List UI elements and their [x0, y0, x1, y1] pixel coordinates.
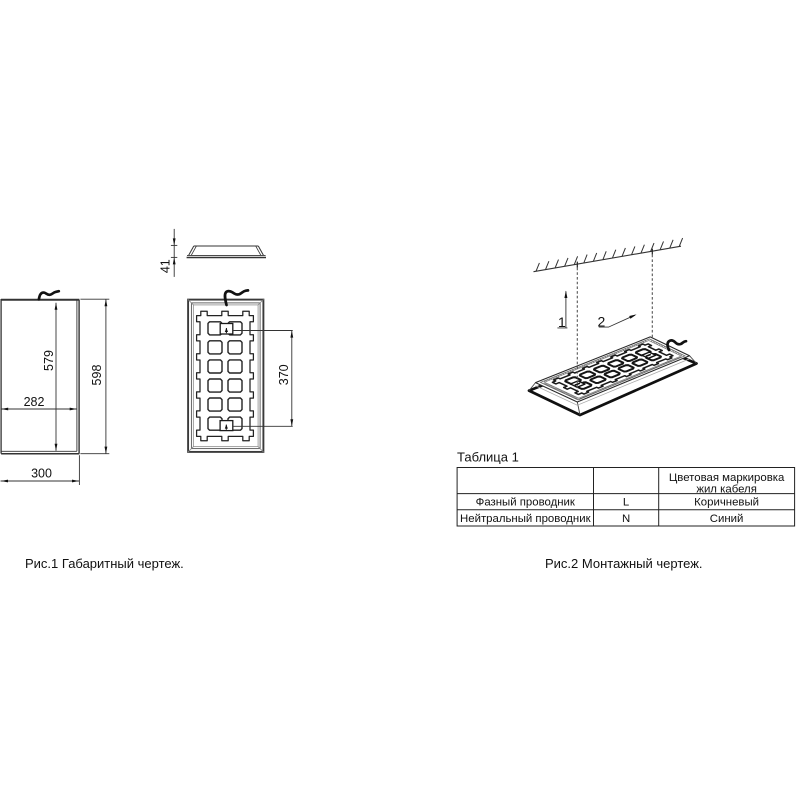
svg-text:Рис.1 Габаритный чертеж.: Рис.1 Габаритный чертеж. — [25, 556, 184, 571]
svg-text:Рис.2 Монтажный чертеж.: Рис.2 Монтажный чертеж. — [545, 556, 703, 571]
svg-text:Синий: Синий — [710, 513, 744, 525]
svg-text:370: 370 — [277, 364, 291, 385]
svg-text:L: L — [623, 497, 629, 509]
svg-text:жил кабеля: жил кабеля — [696, 484, 757, 496]
svg-text:Цветовая маркировка: Цветовая маркировка — [669, 472, 785, 484]
svg-text:282: 282 — [24, 395, 45, 409]
svg-text:598: 598 — [90, 365, 104, 386]
svg-text:Нейтральный проводник: Нейтральный проводник — [460, 513, 592, 525]
svg-text:Таблица 1: Таблица 1 — [457, 450, 519, 465]
svg-text:N: N — [622, 513, 630, 525]
svg-text:41: 41 — [159, 259, 173, 273]
svg-text:Коричневый: Коричневый — [694, 497, 759, 509]
svg-text:579: 579 — [42, 350, 56, 371]
svg-text:Фазный проводник: Фазный проводник — [476, 497, 576, 509]
svg-text:300: 300 — [31, 467, 52, 481]
